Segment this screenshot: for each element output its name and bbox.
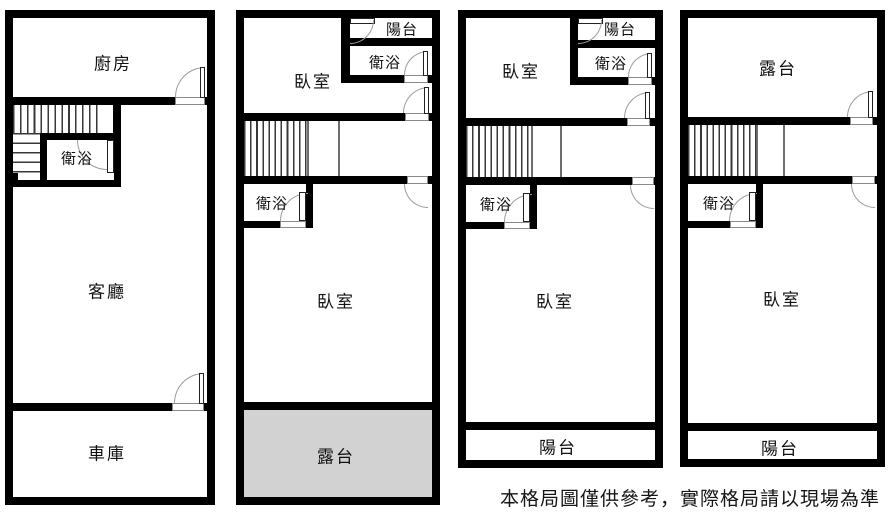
disclaimer-text: 本格局圖僅供參考，實際格局請以現場為準 — [497, 484, 883, 511]
bedroom-label: 臥室 — [536, 288, 574, 313]
bedroom-label: 臥室 — [502, 58, 540, 83]
terrace-label: 露台 — [317, 443, 355, 468]
wall — [873, 117, 877, 125]
wall — [688, 176, 852, 184]
wall — [570, 77, 628, 85]
door-threshold — [628, 77, 652, 85]
bedroom-label: 臥室 — [294, 68, 332, 93]
door-threshold — [852, 176, 875, 184]
door-leaf — [199, 373, 204, 404]
balcony-label: 陽台 — [386, 19, 418, 40]
door-leaf — [523, 193, 530, 222]
balcony-label: 陽台 — [761, 435, 799, 460]
wall — [204, 403, 207, 411]
balcony-label: 陽台 — [604, 19, 636, 40]
wall — [466, 118, 627, 126]
wall — [652, 77, 655, 85]
door-swing-arc — [851, 184, 875, 208]
wall — [244, 176, 407, 184]
door-threshold — [730, 221, 756, 228]
door-threshold — [632, 177, 654, 185]
door-threshold — [280, 221, 306, 228]
stair-divider — [560, 126, 562, 177]
bath-label: 衛浴 — [480, 194, 512, 215]
floor-4-plan: 露台 衛浴 臥室 陽台 — [680, 10, 885, 467]
door-leaf — [299, 192, 306, 221]
wall — [13, 97, 175, 105]
door-threshold — [175, 97, 205, 105]
balcony-label: 陽台 — [539, 434, 577, 459]
door-leaf — [647, 53, 652, 78]
door-leaf — [645, 92, 650, 119]
door-threshold — [850, 117, 873, 125]
floor-plan-sheet: 廚房 衛浴 客廳 車庫 陽台 — [0, 0, 889, 515]
bath-label: 衛浴 — [595, 53, 627, 74]
wall — [13, 180, 40, 187]
stair-edge — [756, 125, 758, 176]
stairs — [13, 105, 101, 133]
wall — [244, 402, 432, 410]
living-label: 客廳 — [88, 278, 126, 303]
wall — [688, 423, 877, 431]
stairs — [466, 126, 532, 177]
bedroom-label: 臥室 — [763, 286, 801, 311]
door-threshold — [504, 222, 530, 229]
bath-label: 衛浴 — [61, 148, 93, 169]
stairs — [688, 125, 757, 176]
bedroom-label: 臥室 — [317, 288, 355, 313]
stair-edge — [307, 121, 309, 176]
wall — [428, 176, 432, 184]
wall — [466, 422, 655, 430]
wall — [428, 75, 432, 83]
door-leaf — [200, 67, 205, 98]
bath-label: 衛浴 — [369, 52, 401, 73]
wall — [13, 403, 172, 411]
stair-divider — [783, 125, 785, 176]
wall — [341, 75, 404, 83]
door-swing-arc — [404, 184, 428, 208]
stair-divider — [338, 121, 340, 176]
wall — [654, 177, 655, 185]
floor-1-plan: 廚房 衛浴 客廳 車庫 — [5, 10, 215, 505]
door-leaf — [868, 91, 873, 118]
stairs — [13, 133, 40, 175]
door-leaf — [749, 192, 756, 221]
floor-3-plan: 陽台 衛浴 臥室 衛浴 臥室 陽台 — [458, 10, 663, 468]
wall — [688, 117, 850, 125]
door-leaf — [424, 87, 429, 114]
wall — [875, 176, 877, 184]
door-threshold — [404, 75, 428, 83]
wall — [429, 113, 432, 121]
garage-label: 車庫 — [88, 440, 126, 465]
bath-label: 衛浴 — [256, 193, 288, 214]
wall — [650, 118, 655, 126]
wall — [205, 97, 207, 105]
door-threshold — [627, 118, 650, 126]
wall — [244, 113, 405, 121]
floor-2-plan: 陽台 衛浴 臥室 衛浴 臥室 露台 — [236, 10, 440, 505]
door-leaf — [107, 140, 114, 173]
terrace-label: 露台 — [759, 55, 797, 80]
kitchen-label: 廚房 — [94, 50, 132, 75]
stairs — [244, 121, 308, 176]
bath-label: 衛浴 — [703, 193, 735, 214]
door-swing-arc — [630, 185, 654, 209]
wall — [466, 177, 632, 185]
door-threshold — [407, 176, 428, 184]
door-threshold — [405, 113, 429, 121]
stair-edge — [531, 126, 533, 177]
door-threshold — [172, 403, 204, 411]
door-leaf — [423, 51, 428, 76]
